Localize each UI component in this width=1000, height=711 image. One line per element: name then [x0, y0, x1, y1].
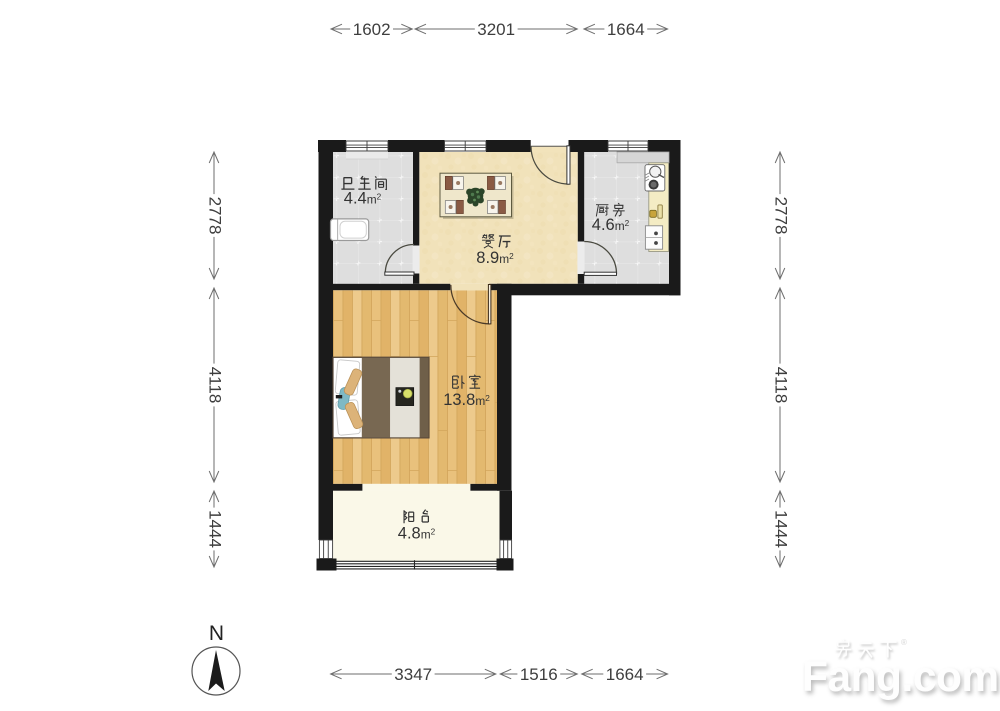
svg-text:1444: 1444: [772, 510, 791, 548]
svg-text:3201: 3201: [477, 20, 515, 39]
svg-text:N: N: [209, 622, 224, 645]
svg-text:Fang.com: Fang.com: [802, 654, 999, 701]
svg-text:2778: 2778: [772, 197, 791, 235]
svg-text:4118: 4118: [772, 367, 791, 404]
svg-text:®: ®: [901, 638, 907, 647]
svg-text:1664: 1664: [607, 20, 645, 39]
svg-text:4.8m2: 4.8m2: [398, 525, 436, 543]
svg-text:1664: 1664: [606, 665, 644, 684]
svg-text:4118: 4118: [206, 367, 225, 404]
svg-text:3347: 3347: [394, 665, 432, 684]
svg-text:1516: 1516: [520, 665, 558, 684]
svg-text:13.8m2: 13.8m2: [443, 391, 490, 409]
svg-text:1602: 1602: [353, 20, 391, 39]
svg-text:4.4m2: 4.4m2: [344, 190, 382, 208]
svg-text:1444: 1444: [206, 510, 225, 548]
svg-text:2778: 2778: [206, 197, 225, 235]
svg-text:8.9m2: 8.9m2: [476, 249, 514, 267]
svg-text:4.6m2: 4.6m2: [592, 216, 630, 234]
